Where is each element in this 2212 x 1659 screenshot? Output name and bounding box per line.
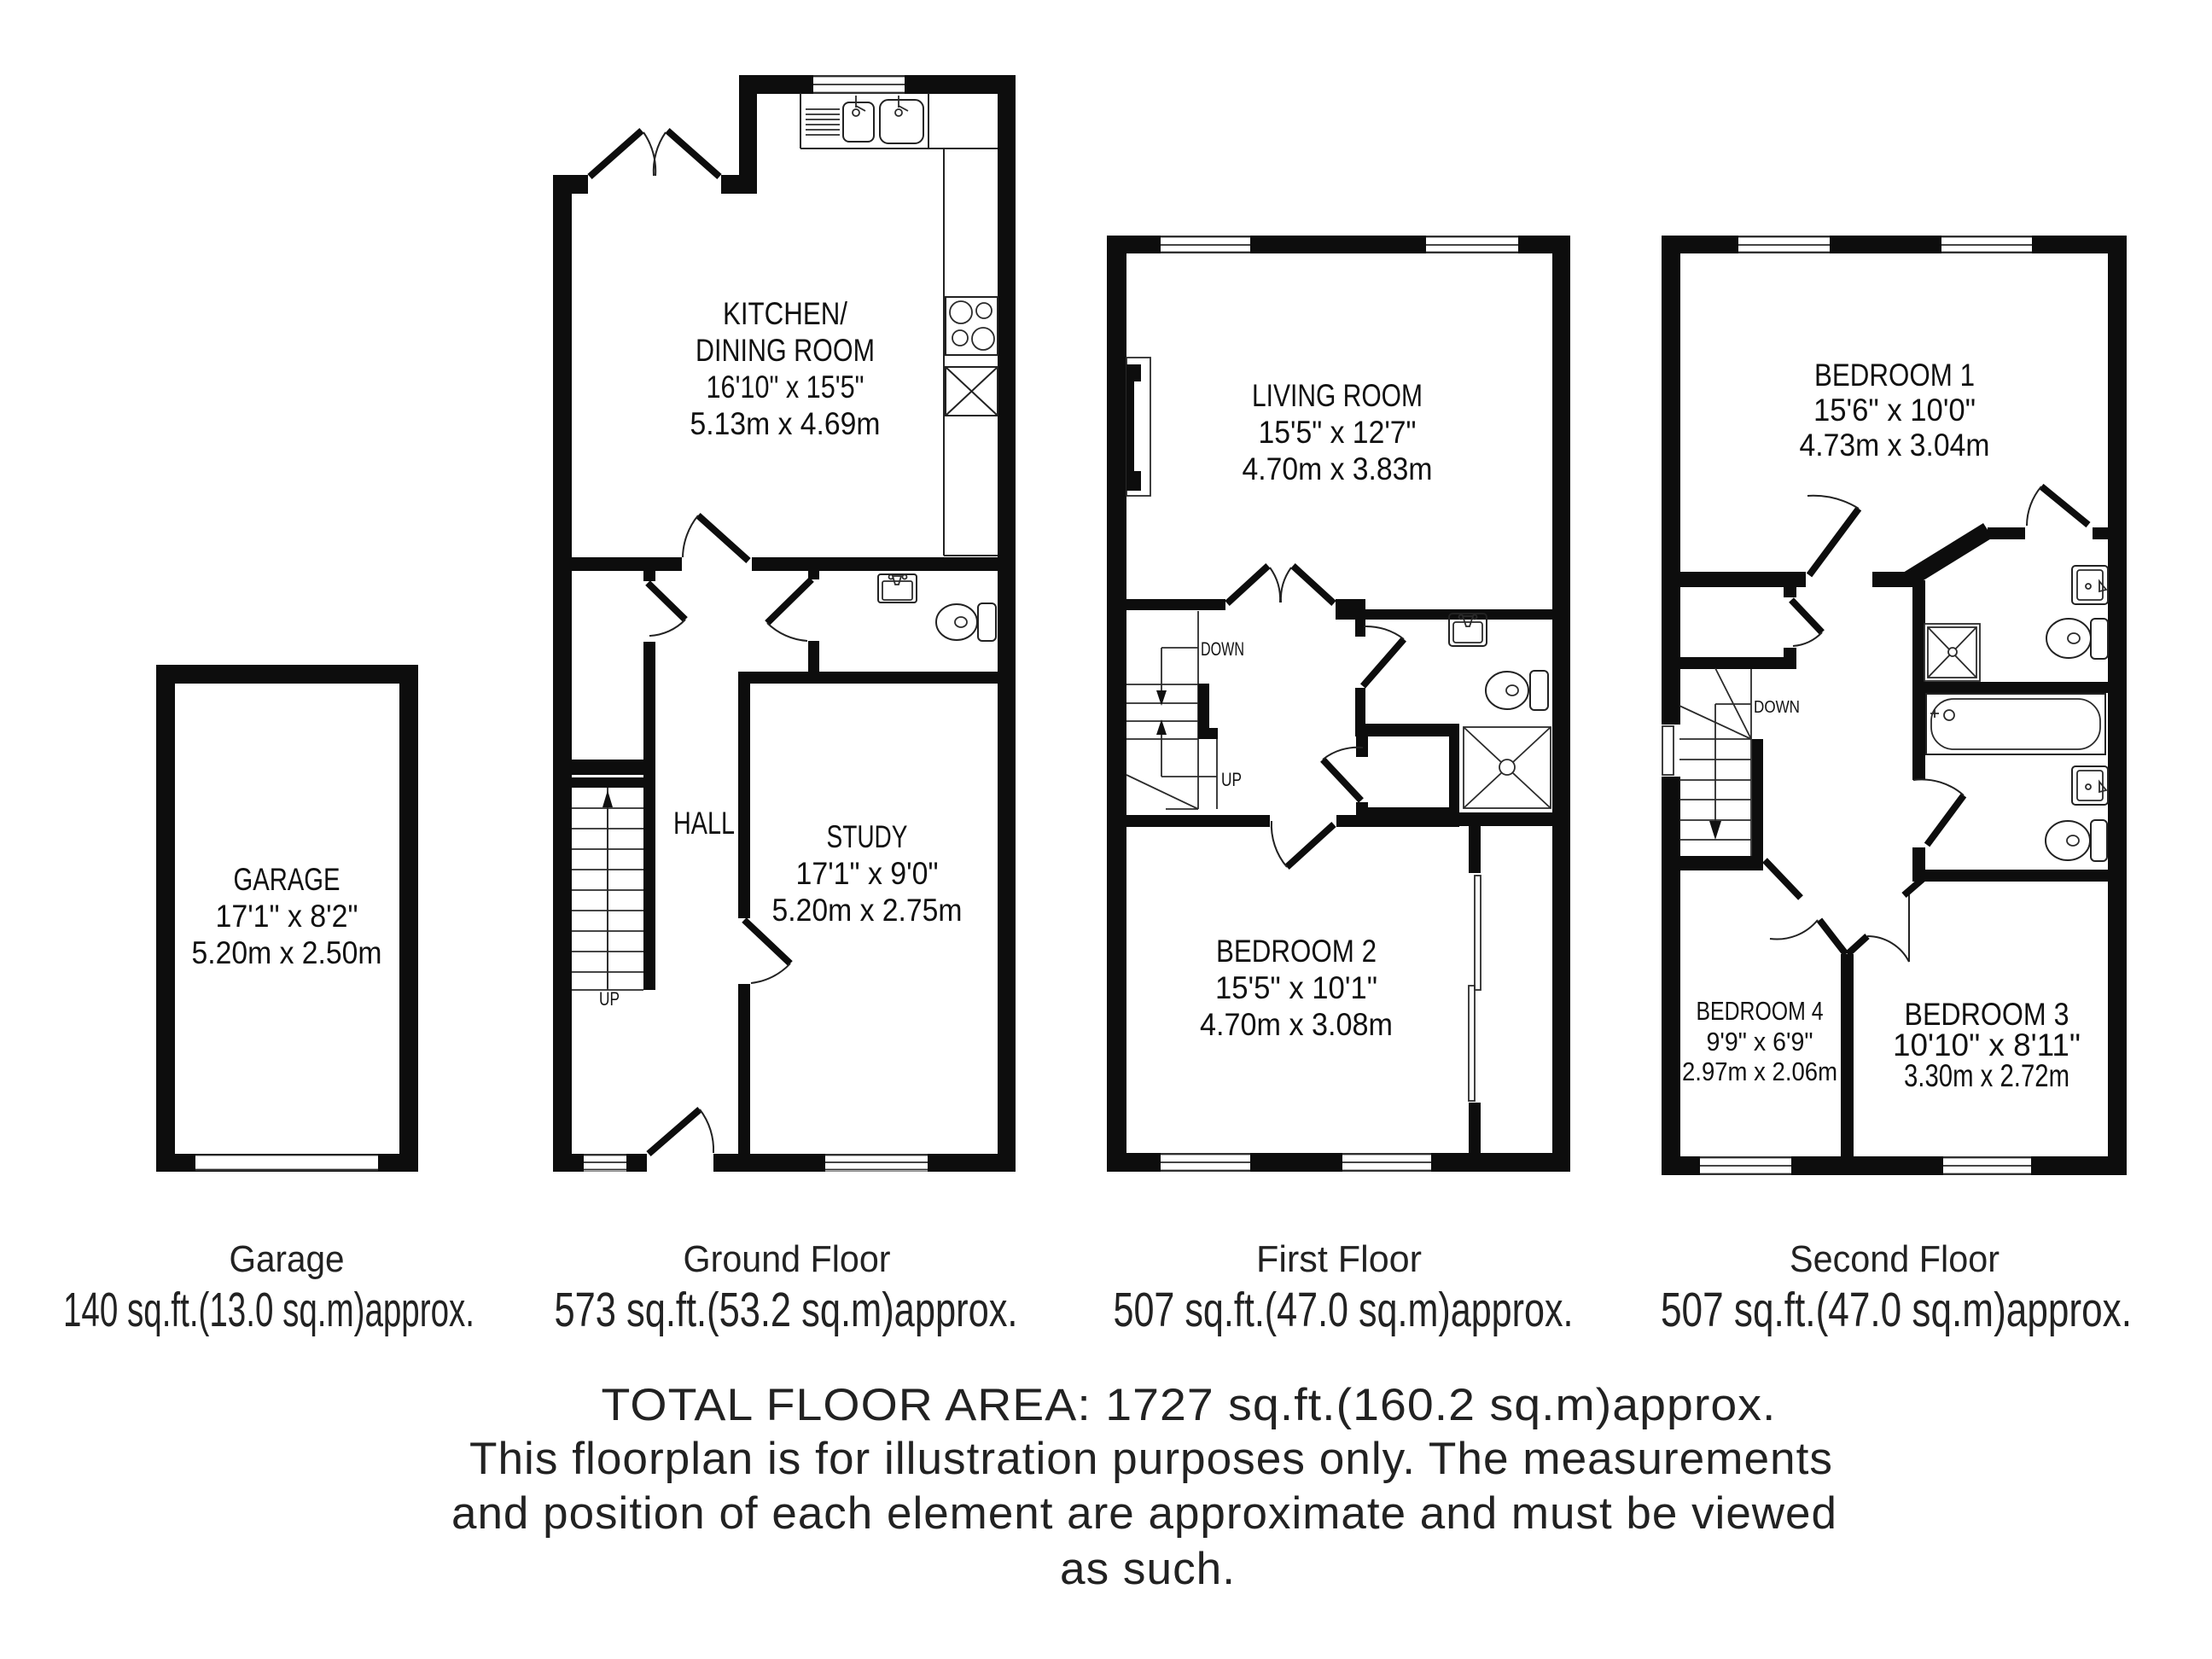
svg-text:as such.: as such.	[1060, 1544, 1236, 1594]
svg-text:DINING ROOM: DINING ROOM	[696, 333, 875, 368]
svg-text:15'5" x 12'7": 15'5" x 12'7"	[1259, 415, 1417, 450]
svg-text:507 sq.ft.(47.0 sq.m)approx.: 507 sq.ft.(47.0 sq.m)approx.	[1661, 1283, 2132, 1337]
svg-text:DOWN: DOWN	[1201, 638, 1244, 660]
svg-text:16'10" x 15'5": 16'10" x 15'5"	[707, 370, 864, 405]
svg-text:17'1" x 8'2": 17'1" x 8'2"	[216, 899, 358, 934]
svg-text:KITCHEN/: KITCHEN/	[723, 296, 848, 331]
svg-text:and position of each element a: and position of each element are approxi…	[451, 1488, 1837, 1539]
svg-text:First Floor: First Floor	[1256, 1238, 1422, 1280]
svg-text:GARAGE: GARAGE	[234, 862, 341, 897]
svg-text:5.20m x 2.50m: 5.20m x 2.50m	[192, 935, 382, 970]
svg-text:10'10" x 8'11": 10'10" x 8'11"	[1893, 1027, 2081, 1062]
svg-text:Garage: Garage	[230, 1238, 345, 1280]
svg-text:15'5" x 10'1": 15'5" x 10'1"	[1215, 970, 1377, 1005]
svg-text:3.30m x 2.72m: 3.30m x 2.72m	[1904, 1058, 2069, 1093]
svg-text:This floorplan is for illustra: This floorplan is for illustration purpo…	[469, 1434, 1833, 1484]
svg-text:TOTAL FLOOR AREA: 1727 sq.ft.(: TOTAL FLOOR AREA: 1727 sq.ft.(160.2 sq.m…	[602, 1380, 1777, 1430]
svg-text:5.13m x 4.69m: 5.13m x 4.69m	[690, 406, 881, 441]
svg-text:507 sq.ft.(47.0 sq.m)approx.: 507 sq.ft.(47.0 sq.m)approx.	[1114, 1283, 1574, 1337]
svg-text:UP: UP	[1221, 769, 1242, 790]
svg-text:Second Floor: Second Floor	[1790, 1238, 2000, 1280]
svg-text:573 sq.ft.(53.2 sq.m)approx.: 573 sq.ft.(53.2 sq.m)approx.	[555, 1283, 1018, 1337]
svg-text:17'1" x 9'0": 17'1" x 9'0"	[796, 856, 939, 891]
svg-text:5.20m x 2.75m: 5.20m x 2.75m	[772, 893, 963, 928]
svg-text:2.97m x 2.06m: 2.97m x 2.06m	[1682, 1057, 1837, 1086]
svg-text:4.73m x 3.04m: 4.73m x 3.04m	[1800, 428, 1990, 463]
svg-text:15'6" x 10'0": 15'6" x 10'0"	[1813, 393, 1976, 428]
svg-text:Ground Floor: Ground Floor	[684, 1238, 891, 1280]
svg-text:BEDROOM 2: BEDROOM 2	[1216, 934, 1377, 969]
svg-text:DOWN: DOWN	[1754, 698, 1800, 717]
svg-text:LIVING ROOM: LIVING ROOM	[1252, 378, 1423, 413]
svg-text:UP: UP	[599, 988, 620, 1010]
svg-text:4.70m x 3.83m: 4.70m x 3.83m	[1243, 451, 1433, 486]
svg-text:140 sq.ft.(13.0 sq.m)approx.: 140 sq.ft.(13.0 sq.m)approx.	[63, 1283, 474, 1337]
svg-text:BEDROOM 1: BEDROOM 1	[1814, 358, 1975, 393]
svg-text:9'9" x 6'9": 9'9" x 6'9"	[1707, 1027, 1813, 1057]
svg-text:BEDROOM 4: BEDROOM 4	[1697, 996, 1824, 1026]
svg-text:BEDROOM 3: BEDROOM 3	[1905, 997, 2069, 1032]
svg-text:STUDY: STUDY	[827, 819, 908, 854]
svg-text:HALL: HALL	[673, 806, 735, 841]
svg-text:4.70m x 3.08m: 4.70m x 3.08m	[1200, 1007, 1393, 1042]
